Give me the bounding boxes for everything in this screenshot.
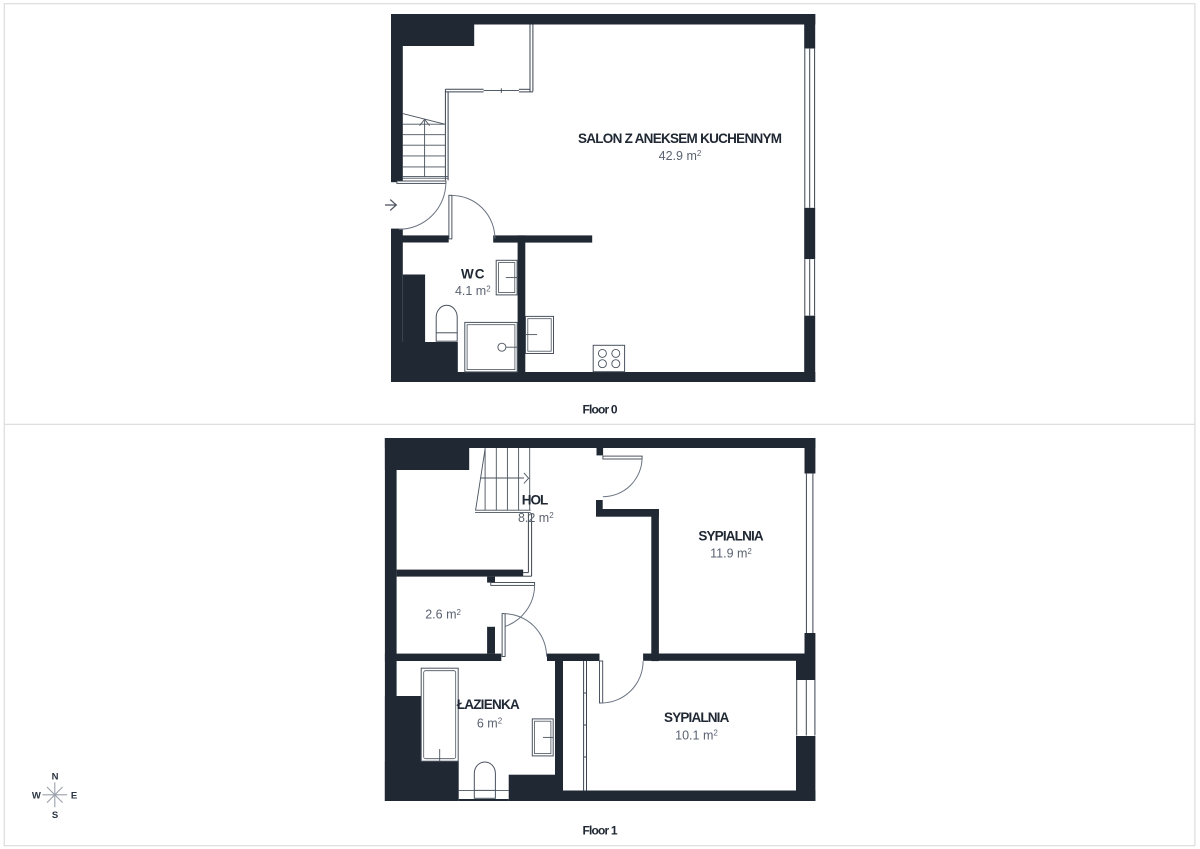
svg-text:42.9 m2: 42.9 m2	[659, 149, 702, 163]
svg-text:HOL: HOL	[522, 493, 549, 508]
svg-text:Floor 0: Floor 0	[583, 403, 618, 417]
svg-text:2.6 m2: 2.6 m2	[425, 608, 461, 622]
svg-text:N: N	[52, 771, 59, 782]
svg-text:W: W	[32, 790, 41, 801]
svg-text:SYPIALNIA: SYPIALNIA	[698, 529, 764, 544]
svg-text:8.2 m2: 8.2 m2	[518, 511, 554, 525]
svg-text:Floor 1: Floor 1	[583, 824, 618, 838]
svg-text:SALON Z ANEKSEM KUCHENNYM: SALON Z ANEKSEM KUCHENNYM	[578, 131, 782, 146]
svg-text:S: S	[52, 810, 58, 821]
svg-text:ŁAZIENKA: ŁAZIENKA	[457, 697, 520, 712]
svg-text:4.1 m2: 4.1 m2	[455, 284, 491, 298]
svg-text:SYPIALNIA: SYPIALNIA	[664, 710, 730, 725]
svg-text:WC: WC	[461, 266, 485, 281]
svg-text:11.9 m2: 11.9 m2	[710, 547, 752, 561]
svg-text:E: E	[71, 790, 77, 801]
svg-text:10.1 m2: 10.1 m2	[675, 729, 718, 743]
